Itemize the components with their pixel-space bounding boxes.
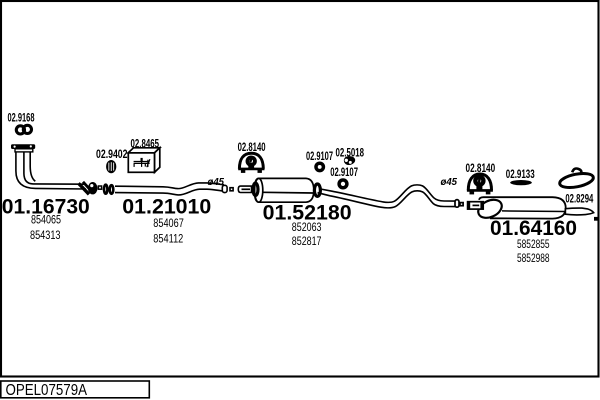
svg-text:852063: 852063 [292, 221, 322, 234]
svg-text:854065: 854065 [31, 214, 61, 227]
svg-text:01.64160: 01.64160 [490, 216, 577, 240]
svg-text:02.8294: 02.8294 [565, 191, 593, 205]
svg-text:OPEL07579A: OPEL07579A [6, 382, 88, 399]
svg-text:02.9107: 02.9107 [306, 149, 333, 163]
svg-text:854067: 854067 [153, 217, 184, 230]
svg-text:5852855: 5852855 [517, 238, 550, 251]
svg-text:ø45: ø45 [208, 176, 225, 188]
svg-text:854313: 854313 [30, 229, 61, 242]
svg-text:ø45: ø45 [441, 176, 458, 188]
svg-text:02.9168: 02.9168 [8, 110, 35, 124]
svg-text:854112: 854112 [153, 232, 183, 245]
svg-text:02.9107: 02.9107 [330, 165, 358, 179]
svg-text:01.21010: 01.21010 [122, 195, 211, 219]
svg-text:02.9133: 02.9133 [506, 167, 535, 181]
svg-text:5852988: 5852988 [517, 252, 550, 265]
svg-text:02.9402: 02.9402 [96, 147, 128, 161]
svg-text:852817: 852817 [292, 235, 322, 248]
